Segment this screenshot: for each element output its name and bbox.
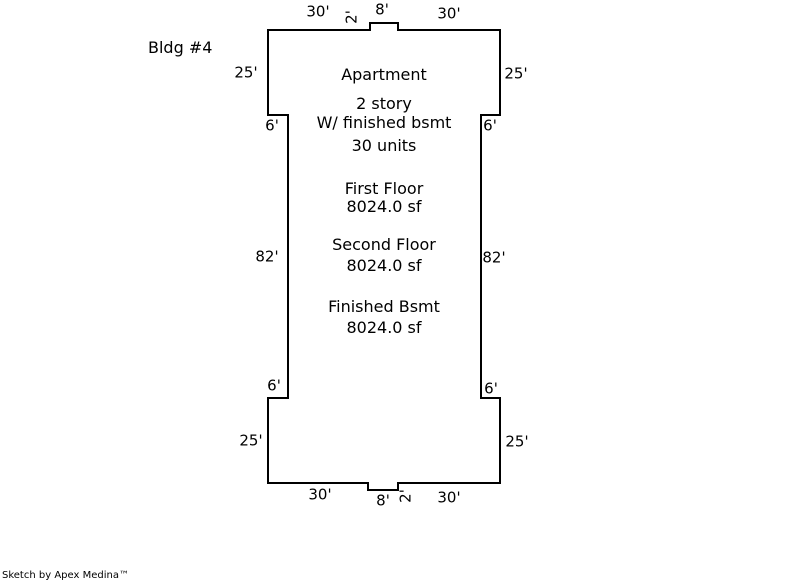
- dim-upper-left-25: 25': [234, 66, 257, 81]
- finished-bsmt-area: 8024.0 sf: [346, 320, 421, 336]
- dim-bottom-jog-8: 8': [376, 494, 390, 509]
- dim-lower-right-25: 25': [505, 435, 528, 450]
- dim-bottom-jog-2: 2': [399, 489, 414, 503]
- building-units: 30 units: [352, 138, 417, 154]
- dim-top-left-30: 30': [306, 5, 329, 20]
- dim-lower-right-step-6: 6': [484, 382, 498, 397]
- dim-right-82: 82': [482, 251, 505, 266]
- dim-bottom-right-30: 30': [437, 491, 460, 506]
- second-floor-area: 8024.0 sf: [346, 258, 421, 274]
- dim-upper-right-25: 25': [504, 67, 527, 82]
- building-name: Apartment: [341, 67, 427, 83]
- dim-lower-left-25: 25': [239, 434, 262, 449]
- building-stories: 2 story: [356, 96, 412, 112]
- building-basement-note: W/ finished bsmt: [317, 115, 452, 131]
- building-title: Bldg #4: [148, 40, 212, 56]
- finished-bsmt-label: Finished Bsmt: [328, 299, 440, 315]
- second-floor-label: Second Floor: [332, 237, 436, 253]
- watermark: Sketch by Apex Medina™: [2, 571, 129, 581]
- dim-top-jog-8: 8': [375, 3, 389, 18]
- dim-upper-left-step-6: 6': [265, 119, 279, 134]
- dim-lower-left-step-6: 6': [267, 379, 281, 394]
- dim-top-jog-2: 2': [345, 10, 360, 24]
- dim-upper-right-step-6: 6': [483, 119, 497, 134]
- first-floor-area: 8024.0 sf: [346, 199, 421, 215]
- dim-top-right-30: 30': [437, 7, 460, 22]
- dim-bottom-left-30: 30': [308, 488, 331, 503]
- floorplan-sketch: Bldg #4 Apartment 2 story W/ finished bs…: [0, 0, 800, 587]
- first-floor-label: First Floor: [345, 181, 424, 197]
- dim-left-82: 82': [255, 250, 278, 265]
